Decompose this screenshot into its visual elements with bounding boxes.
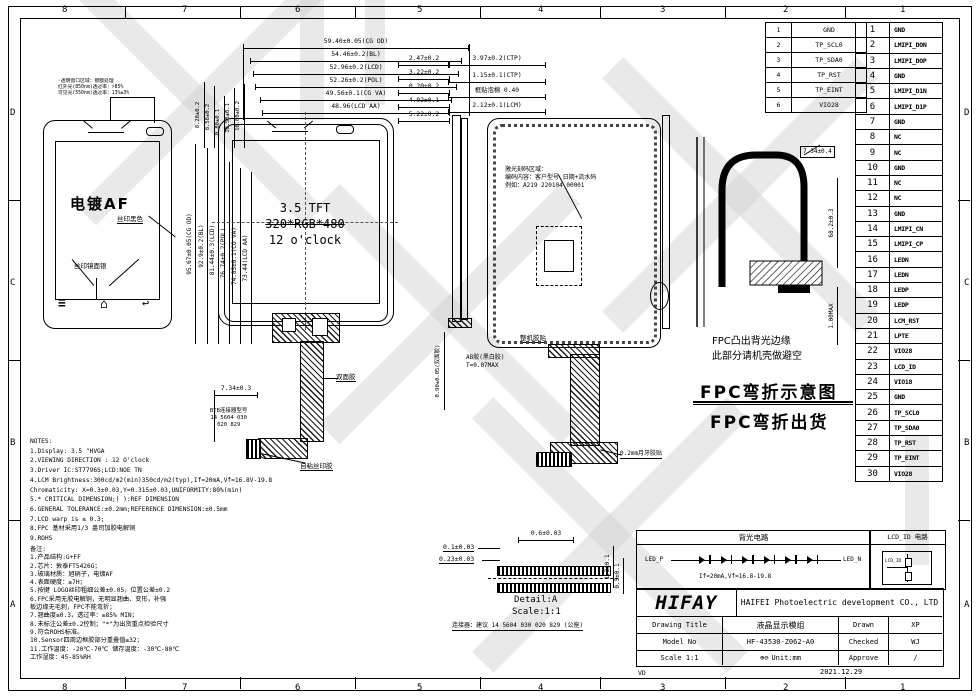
pin-signal: TP_EINT <box>889 451 943 466</box>
bend-thickness-dim: 1.00MAX <box>828 287 838 345</box>
pin-signal: LMIPI_DON <box>889 38 943 53</box>
leader-line <box>110 97 155 98</box>
checked-value: WJ <box>911 638 919 646</box>
note-line: NOTES: <box>30 437 272 447</box>
zone-tick <box>845 677 846 689</box>
bend-offset-dim: 7.34±0.4 <box>800 146 835 158</box>
front-notch-line <box>88 132 124 133</box>
approve-value-cell: / <box>889 651 942 665</box>
drawn-value-cell: XP <box>889 617 942 634</box>
pin-signal: LMIPI_D1N <box>889 84 943 99</box>
table-row: 12 NC <box>855 191 943 206</box>
zone-label: 7 <box>182 5 187 15</box>
checked-label: Checked <box>849 638 879 646</box>
drawing-title-label-cell: Drawing Title <box>637 617 723 634</box>
drawn-label: Drawn <box>853 621 874 629</box>
ab-glue-label: AB胶(黑白胶) T=0.07MAX <box>466 354 504 369</box>
zone-tick <box>240 6 241 18</box>
tape-label: 双面胶 <box>336 373 356 382</box>
table-row: 4 TP_RST <box>765 68 867 83</box>
dimension-label: 59.40±0.05(CG OD) <box>243 38 469 49</box>
pin-number: 1 <box>855 23 889 38</box>
zone-label: A <box>10 600 15 610</box>
connector-suggest-note: 连接器：建议 14 5604 030 020 829 (公座) <box>452 622 583 631</box>
zone-tick <box>8 520 20 521</box>
table-row: 20 LCM_RST <box>855 314 943 329</box>
dimension-label: 1.15±0.1(CTP) <box>448 72 546 83</box>
table-row: 29 TP_EINT <box>855 451 943 466</box>
pin-number: 7 <box>855 115 889 130</box>
zone-label: C <box>964 278 969 288</box>
zone-tick <box>125 677 126 689</box>
zone-tick <box>480 677 481 689</box>
table-row: 24 VIO18 <box>855 375 943 390</box>
zone-tick <box>480 6 481 18</box>
remark-line: 1.产品结构:G+FF <box>30 554 179 562</box>
note-line: 3.Driver IC:ST7796S;LCD:NOE TN <box>30 466 272 476</box>
table-row: 21 LPTE <box>855 329 943 344</box>
pin-number: 25 <box>855 390 889 405</box>
pin-number: 21 <box>855 329 889 344</box>
table-row: 27 TP_SDA0 <box>855 421 943 436</box>
pin-signal: TP_RST <box>889 436 943 451</box>
pin-number: 4 <box>855 69 889 84</box>
zone-label: 6 <box>295 5 300 15</box>
zone-label: 5 <box>417 683 422 693</box>
table-row: 9 NC <box>855 145 943 160</box>
home-icon: ⌂ <box>100 297 108 312</box>
pin-number: 6 <box>765 98 791 113</box>
remark-line: 5.按键 LOGO丝印粗细公差±0.05，位置公差±0.2 <box>30 587 179 595</box>
pin-number: 30 <box>855 467 889 482</box>
pin-signal: NC <box>889 191 943 206</box>
notes-en: NOTES:1.Display: 3.5 "HVGA2.VIEWING DIRE… <box>30 437 272 544</box>
pin-signal: LMIPI_CP <box>889 237 943 252</box>
zone-label: 3 <box>660 683 665 693</box>
remark-line: 7.翘曲度≤0.3，透过率：≥85% MIN； <box>30 612 179 620</box>
remark-line: 11.工作温度：-20℃-70℃ 储存温度：-30℃-80℃ <box>30 646 179 654</box>
pin-signal: LMIPI_DOP <box>889 54 943 69</box>
table-row: 5 TP_EINT <box>765 83 867 98</box>
drawn-label-cell: Drawn <box>839 617 889 634</box>
pin-signal: VIO28 <box>889 344 943 359</box>
table-row: 11 NC <box>855 176 943 191</box>
fpc-clearance-line: 此部分请机壳做避空 <box>712 349 802 364</box>
model-value: HF-43530-Z062-A0 <box>747 638 814 646</box>
led-diode-icon <box>752 555 754 564</box>
laser-note-line: 激光刻码区域： <box>505 166 596 174</box>
dimension-label: 3.22±0.2 <box>398 69 450 80</box>
leader-line <box>478 548 500 549</box>
pin-signal: GND <box>889 115 943 130</box>
coating-note: ·透明窗口区域：镀膜处理红外光(850nm)透过率：>85%可见光(550nm)… <box>58 79 129 97</box>
zone-label: 1 <box>900 5 905 15</box>
rear-fpc-vertical <box>570 354 600 446</box>
pin-number: 3 <box>765 53 791 68</box>
table-row: 22 VIO28 <box>855 344 943 359</box>
note-line: Chromaticity: X=0.3±0.03,Y=0.315±0.03,UN… <box>30 486 272 496</box>
pin-number: 14 <box>855 222 889 237</box>
pin-signal: NC <box>889 130 943 145</box>
pin-number: 19 <box>855 298 889 313</box>
model-value-cell: HF-43530-Z062-A0 <box>723 634 839 651</box>
pin-number: 16 <box>855 252 889 267</box>
table-row: 19 LEDP <box>855 298 943 313</box>
side-tape-dim: 0.90±0.05(双面胶) <box>435 332 445 410</box>
zone-tick <box>8 360 20 361</box>
drawing-title-label: Drawing Title <box>652 621 707 629</box>
fpc-bend-title: FPC弯折示意图 <box>700 378 838 403</box>
leader-line <box>110 97 111 120</box>
pin-number: 2 <box>765 38 791 53</box>
moon-tape-label: 0.2mm月牙胶贴 <box>620 450 662 459</box>
divider-line <box>693 404 853 405</box>
pin-number: 26 <box>855 405 889 420</box>
fpc-connector-window <box>282 318 296 332</box>
pin-signal: GND <box>889 207 943 222</box>
dimension-label: 92.9±0.2(BL) <box>198 148 208 344</box>
detail-dim-left: 0.23±0.03 <box>439 555 474 564</box>
pin-number: 1 <box>765 23 791 38</box>
scale-label: Scale 1:1 <box>661 654 699 662</box>
pin-number: 3 <box>855 54 889 69</box>
detail-dim-left: 0.1±0.03 <box>443 543 474 552</box>
zone-label: 4 <box>538 683 543 693</box>
pin-signal: LEDP <box>889 283 943 298</box>
zone-label: 2 <box>783 683 788 693</box>
zone-tick <box>355 677 356 689</box>
dimension-label: 8.58±0.2 <box>205 86 215 148</box>
detail-bar <box>497 566 611 576</box>
zone-label: 8 <box>62 5 67 15</box>
drawn-value: XP <box>911 621 919 629</box>
dimension-label: 95.67±0.05(CG OD) <box>186 144 196 344</box>
release-date: 2021.12.29 <box>820 668 862 676</box>
zone-tick <box>125 6 126 18</box>
pin-signal: NC <box>889 145 943 160</box>
led-diode-icon <box>795 555 797 564</box>
zone-label: 3 <box>660 5 665 15</box>
divider-line <box>693 401 853 403</box>
pin-signal: LMIPI_CN <box>889 222 943 237</box>
pin-number: 5 <box>765 83 791 98</box>
pin-signal: TP_SCL0 <box>889 405 943 420</box>
backlight-title: 背光电路 <box>637 531 870 545</box>
pin-signal: GND <box>889 69 943 84</box>
remark-line: 3.玻璃材质：旭硝子，电镀AF <box>30 571 179 579</box>
title-block: HIFAY HAIFEI Photoelectric development C… <box>636 588 944 667</box>
pin-number: 4 <box>765 68 791 83</box>
detail-bar <box>497 583 611 593</box>
dimension-label: 3.97±0.2(CTP) <box>448 55 546 66</box>
side-view-bar <box>452 115 461 322</box>
dimension-label: 5.22±0.2 <box>398 111 450 122</box>
pin-number: 17 <box>855 268 889 283</box>
detail-dim-right: 1.3±0.1 <box>604 546 614 588</box>
company-name: HAIFEI Photoelectric development CO., LT… <box>741 598 938 607</box>
table-row: 10 GND <box>855 161 943 176</box>
pin-signal: LCD_ID <box>889 360 943 375</box>
zone-tick <box>845 6 846 18</box>
led-diode-icon <box>709 555 711 564</box>
leader-line <box>96 278 97 300</box>
zone-label: 4 <box>538 5 543 15</box>
led-n-label: LED_N <box>843 556 861 564</box>
led-diode-icon <box>721 556 731 564</box>
pin-number: 23 <box>855 360 889 375</box>
company-cell: HAIFEI Photoelectric development CO., LT… <box>737 589 942 617</box>
zone-tick <box>958 200 970 201</box>
lcd-id-title: LCD_ID 电路 <box>870 531 945 545</box>
zone-tick <box>725 677 726 689</box>
pin-signal: GND <box>889 390 943 405</box>
btb-connector-note: BTB连接器型号14 5604 030020 829 <box>210 408 247 429</box>
side-view-bar <box>461 118 468 320</box>
pin-signal: VIO18 <box>889 375 943 390</box>
display-resolution: 320*RGB*480 <box>232 216 378 232</box>
display-size: 3.5 TFT <box>232 200 378 216</box>
approve-label-cell: Approve <box>839 651 889 665</box>
display-camera-hole <box>336 125 354 134</box>
zone-tick <box>355 6 356 18</box>
zone-label: 7 <box>182 683 187 693</box>
zone-tick <box>600 677 601 689</box>
vd-label: VD <box>638 669 646 677</box>
remark-line: 工作湿度：45-85%RH <box>30 654 179 662</box>
pin-number: 13 <box>855 207 889 222</box>
detail-scale: Scale:1:1 <box>512 608 561 616</box>
table-row: 3 TP_SDA0 <box>765 53 867 68</box>
pin-signal: VIO28 <box>889 467 943 482</box>
pin-number: 6 <box>855 99 889 114</box>
pin-number: 10 <box>855 161 889 176</box>
note-line: 5.* CRITICAL DIMENSION;( ):REF DIMENSION <box>30 495 272 505</box>
leader-line <box>322 378 338 379</box>
table-row: 14 LMIPI_CN <box>855 222 943 237</box>
led-diode-icon <box>699 556 709 564</box>
zone-label: 2 <box>783 5 788 15</box>
zone-tick <box>600 6 601 18</box>
table-row: 30 VIO28 <box>855 467 943 482</box>
dimension-label: 4.92±0.1 <box>398 97 450 108</box>
display-notch-line <box>272 131 308 132</box>
zone-tick <box>8 200 20 201</box>
table-row: 28 TP_RST <box>855 436 943 451</box>
table-row: 2 LMIPI_DON <box>855 38 943 53</box>
pin-number: 24 <box>855 375 889 390</box>
side-view-foot <box>448 318 472 328</box>
fpc-connector-window <box>312 318 328 336</box>
circuit-resistor <box>905 572 912 581</box>
fpc-bend-drawing <box>692 135 848 335</box>
profile-ellipse <box>650 282 669 310</box>
pin-number: 28 <box>855 436 889 451</box>
fpc-offset-dim: 7.34±0.3 <box>214 385 258 396</box>
btb-note-line: BTB连接器型号 <box>210 408 247 415</box>
model-label: Model No <box>663 638 697 646</box>
zone-label: A <box>964 600 969 610</box>
table-row: 4 GND <box>855 69 943 84</box>
pin-number: 2 <box>855 38 889 53</box>
approve-label: Approve <box>849 654 879 662</box>
projection-symbol-icon: ⊕⊖ <box>760 654 768 662</box>
table-row: 26 TP_SCL0 <box>855 405 943 420</box>
dimension-label: 2.12±0.1(LCM) <box>448 102 546 113</box>
checked-value-cell: WJ <box>889 634 942 651</box>
laser-note-line: 编码内容：客户型号 日期+流水码 <box>505 174 596 182</box>
fpc-ship-title: FPC弯折出货 <box>710 408 829 433</box>
approve-value: / <box>913 654 917 662</box>
table-row: 2 TP_SCL0 <box>765 38 867 53</box>
remark-line: 2.芯片：敦泰FT5426G； <box>30 563 179 571</box>
extension-line <box>469 44 470 116</box>
lcd-id-box: LCD_ID 电路 LCD_ID <box>869 530 946 590</box>
company-logo: HIFAY <box>655 592 717 614</box>
remarks-cn: 备注:1.产品结构:G+FF2.芯片：敦泰FT5426G；3.玻璃材质：旭硝子，… <box>30 546 179 662</box>
bend-height-dim: 68.2±0.3 <box>828 178 838 268</box>
extension-line <box>243 44 244 120</box>
led-diode-icon <box>807 556 817 564</box>
circuit-wire <box>887 567 907 568</box>
dimension-label: 0.20±0.2 <box>398 83 450 94</box>
tp-connector-table: 1 GND 2 TP_SCL0 3 TP_SDA0 4 TP_RST 5 TP_… <box>765 22 867 113</box>
pin-signal: LEDN <box>889 268 943 283</box>
lcd-id-circuit: LCD_ID <box>882 551 932 585</box>
front-window-outline <box>55 141 160 300</box>
zone-tick <box>958 520 970 521</box>
drawing-title-value: 液晶显示模组 <box>757 620 805 631</box>
detail-label: Detail:A <box>514 596 557 604</box>
note-line: 2.VIEWING DIRECTION : 12 O'clock <box>30 456 272 466</box>
pin-number: 18 <box>855 283 889 298</box>
table-row: 3 LMIPI_DOP <box>855 54 943 69</box>
dimension-label: 8.28±0.2 <box>195 82 205 148</box>
rear-fpc-tail <box>536 452 572 467</box>
zone-tick <box>958 360 970 361</box>
table-row: 16 LEDN <box>855 252 943 267</box>
table-row: 5 LMIPI_D1N <box>855 84 943 99</box>
pin-signal: LMIPI_D1P <box>889 99 943 114</box>
pin-number: 5 <box>855 84 889 99</box>
zone-tick <box>725 6 726 18</box>
pin-signal: NC <box>889 176 943 191</box>
led-diode-icon <box>731 555 733 564</box>
dimension-label: 框贴泡棉 0.40 <box>448 87 546 98</box>
pin-signal: GND <box>889 23 943 38</box>
led-diode-icon <box>764 556 774 564</box>
pin-signal: LPTE <box>889 329 943 344</box>
scale-cell: Scale 1:1 <box>637 651 723 665</box>
lcd-id-net-label: LCD_ID <box>885 558 901 566</box>
pin-number: 29 <box>855 451 889 466</box>
zone-tick <box>240 677 241 689</box>
pin-signal: TP_SDA0 <box>889 421 943 436</box>
zone-label: D <box>10 108 15 118</box>
lcm-pin-table: 1 GND 2 LMIPI_DON 3 LMIPI_DOP 4 GND 5 LM… <box>855 22 943 482</box>
laser-note-line: 例如：A219 220104 00001 <box>505 182 596 190</box>
table-row: 23 LCD_ID <box>855 360 943 375</box>
table-row: 15 LMIPI_CP <box>855 237 943 252</box>
display-viewing: 12 o'clock <box>232 232 378 248</box>
led-diode-icon <box>742 556 752 564</box>
pin-signal: LCM_RST <box>889 314 943 329</box>
btb-note-line: 14 5604 030 <box>210 415 247 422</box>
silk-black-label: 丝印黑色 <box>117 215 143 224</box>
remark-line: 10.Sensor四周边框胶部分重叠值≥32； <box>30 637 179 645</box>
backlight-box: 背光电路 LED_P LED_N If=20mA,Vf=16.8-19.8 <box>636 530 871 590</box>
laser-mark-note: 激光刻码区域：编码内容：客户型号 日期+流水码例如：A219 220104 00… <box>505 166 596 190</box>
table-row: 13 GND <box>855 207 943 222</box>
circuit-resistor <box>905 558 912 567</box>
unit-cell: ⊕⊖ Unit:mm <box>723 651 839 665</box>
led-diode-icon <box>817 555 819 564</box>
pin-number: 20 <box>855 314 889 329</box>
led-diode-icon <box>774 555 776 564</box>
led-spec: If=20mA,Vf=16.8-19.8 <box>699 573 771 581</box>
table-row: 1 GND <box>765 23 867 38</box>
note-line: 7.LCD warp is ≤ 0.3; <box>30 515 272 525</box>
pin-number: 27 <box>855 421 889 436</box>
dimension-label: 2.47±0.2 <box>398 55 450 66</box>
fpc-clearance-note: FPC凸出背光边缘 此部分请机壳做避空 <box>712 334 802 364</box>
zone-label: B <box>964 438 969 448</box>
fpc-tail-vertical <box>300 341 324 442</box>
laser-mark-square <box>544 240 574 272</box>
checked-label-cell: Checked <box>839 634 889 651</box>
detail-dim-right: 0.5±0.1 <box>614 558 624 594</box>
drawing-title-value-cell: 液晶显示模组 <box>723 617 839 634</box>
pin-number: 15 <box>855 237 889 252</box>
note-line: 4.LCM Brightness:300cd/m2(min)350cd/m2(t… <box>30 476 272 486</box>
led-diode-icon <box>785 556 795 564</box>
front-camera-hole <box>146 127 164 136</box>
zone-label: 1 <box>900 683 905 693</box>
model-label-cell: Model No <box>637 634 723 651</box>
table-row: 7 GND <box>855 115 943 130</box>
pin-number: 11 <box>855 176 889 191</box>
pin-number: 12 <box>855 191 889 206</box>
zone-label: D <box>964 108 969 118</box>
zone-label: C <box>10 278 15 288</box>
note-line: 1.Display: 3.5 "HVGA <box>30 447 272 457</box>
note-line: 8.FPC 基材采用1/3 盎司加胶电解铜 <box>30 524 272 534</box>
table-row: 1 GND <box>855 23 943 38</box>
pin-signal: GND <box>889 161 943 176</box>
table-row: 8 NC <box>855 130 943 145</box>
table-row: 25 GND <box>855 390 943 405</box>
detail-centerline <box>488 578 618 579</box>
display-spec-text: 3.5 TFT 320*RGB*480 12 o'clock <box>232 200 378 248</box>
pin-number: 8 <box>855 130 889 145</box>
pin-signal: LEDN <box>889 252 943 267</box>
back-icon: ↩ <box>142 296 149 310</box>
engineering-drawing-sheet: 87654321 87654321 DCBA DCBA ·透明窗口区域：镀膜处理… <box>0 0 980 697</box>
leader-line <box>482 560 500 561</box>
unit-label: Unit:mm <box>771 654 801 662</box>
table-row: 17 LEDN <box>855 268 943 283</box>
led-p-label: LED_P <box>645 556 663 564</box>
note-line: 6.GENERAL TOLERANCE:±0.2mm;REFERENCE DIM… <box>30 505 272 515</box>
zone-label: 8 <box>62 683 67 693</box>
table-row: 6 VIO28 <box>765 98 867 113</box>
pin-number: 22 <box>855 344 889 359</box>
remark-line: 8.未标注公差±0.2控制；"*"为出货重点检验尺寸 <box>30 621 179 629</box>
zone-label: 5 <box>417 5 422 15</box>
fpc-clearance-line: FPC凸出背光边缘 <box>712 334 802 349</box>
note-line: 9.ROHS <box>30 534 272 544</box>
led-string <box>699 555 828 564</box>
logo-cell: HIFAY <box>637 589 737 617</box>
